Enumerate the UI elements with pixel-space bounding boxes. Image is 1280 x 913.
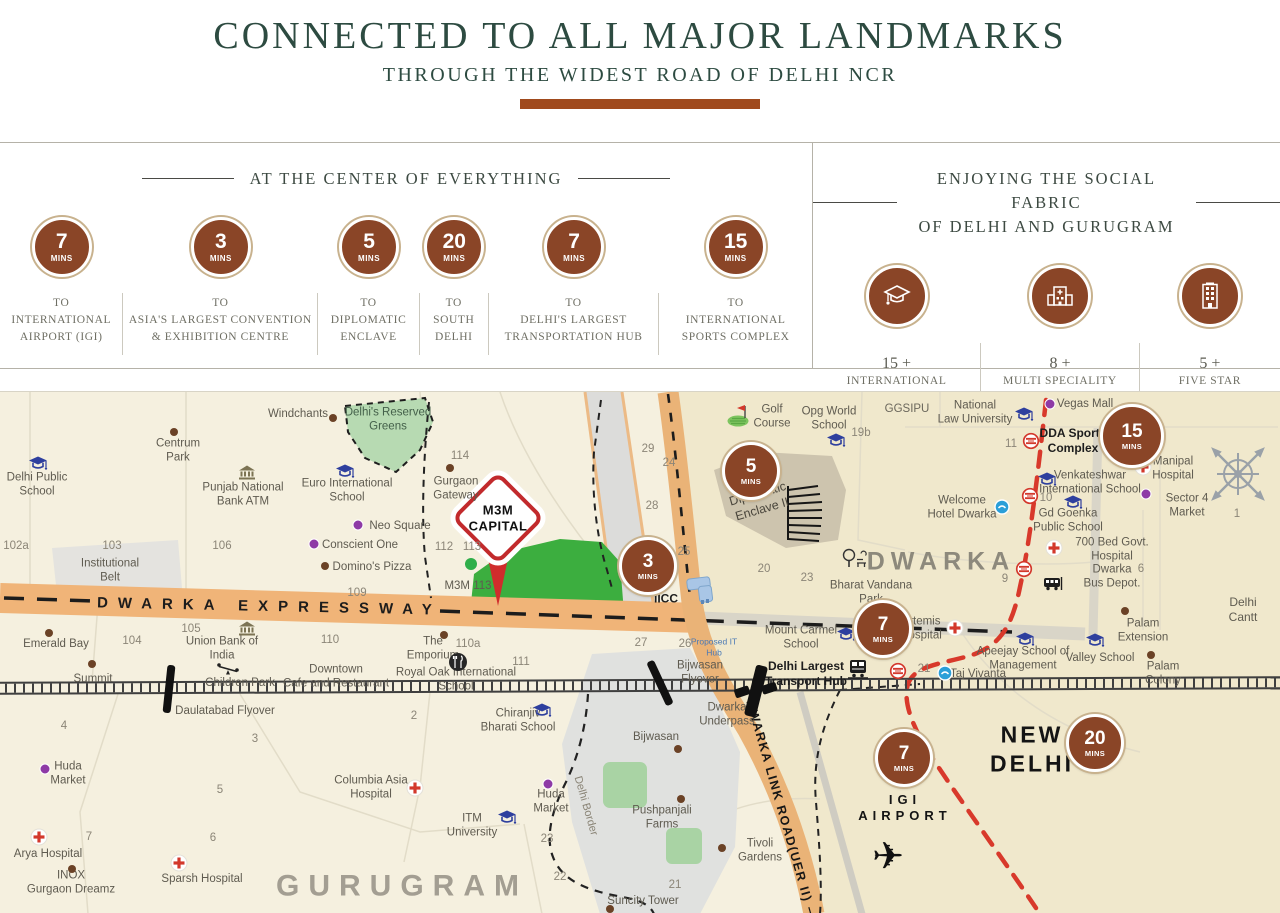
school-icon	[836, 627, 856, 644]
map-label: Summit	[74, 672, 113, 686]
dot-purple-icon	[39, 763, 51, 775]
map-label: Arya Hospital	[14, 847, 82, 861]
map-sector-number: 102a	[3, 539, 29, 553]
social-icons-row	[813, 265, 1280, 327]
minutes-badge: 15MINS	[706, 217, 766, 277]
hospital-icon	[946, 619, 964, 637]
minutes-badge: 20MINS	[424, 217, 484, 277]
hospital-icon	[170, 854, 188, 872]
hospital-icon	[30, 828, 48, 846]
map-sector-number: 21	[669, 878, 682, 892]
region-gurugram: GURUGRAM	[276, 867, 528, 905]
minutes-caption: TO INTERNATIONAL AIRPORT (IGI)	[11, 295, 111, 347]
map-sector-number: 7	[86, 830, 92, 844]
map-label: Delhi's Reserved Greens	[345, 406, 432, 435]
minutes-badge: 7MINS	[544, 217, 604, 277]
school-icon	[335, 464, 355, 481]
map-label: Palam Extension	[1118, 617, 1169, 646]
dot-brown-icon	[606, 905, 615, 913]
heading-line-left	[142, 178, 234, 179]
dot-purple-icon	[1140, 488, 1152, 500]
map-minutes-badge: 20MINS	[1066, 714, 1124, 772]
map-label: Gurgaon Gateway	[433, 475, 478, 504]
map-label: Mount Carmel School	[765, 624, 837, 653]
dot-brown-icon	[718, 844, 727, 853]
dot-brown-icon	[45, 629, 54, 638]
golf-icon	[727, 404, 755, 428]
minutes-caption-cell: TO INTERNATIONAL AIRPORT (IGI)	[0, 293, 123, 355]
minutes-caption: TO DELHI'S LARGEST TRANSPORTATION HUB	[505, 295, 643, 347]
dot-purple-icon	[1044, 398, 1056, 410]
map-label: Conscient One	[322, 538, 398, 552]
school-icon	[1063, 495, 1083, 512]
header: CONNECTED TO ALL MAJOR LANDMARKS THROUGH…	[0, 0, 1280, 109]
dot-purple-icon	[352, 519, 364, 531]
map-label: Bijwasan Flyover	[677, 659, 723, 688]
metro-icon	[1016, 561, 1033, 578]
map-label: Tivoli Gardens	[738, 837, 782, 866]
dot-green-icon	[465, 558, 478, 571]
map-sector-number: 3	[252, 732, 258, 746]
map-sector-number: 104	[122, 634, 141, 648]
map-label: National Law University	[938, 399, 1013, 428]
map-sector-number: 6	[1138, 562, 1144, 576]
map-label: Dwarka Bus Depot.	[1084, 563, 1141, 592]
compass-icon	[1210, 446, 1266, 502]
hospital-icon	[1029, 265, 1091, 327]
map-label: Centrum Park	[156, 437, 200, 466]
minutes-badge: 3MINS	[191, 217, 251, 277]
map-label: GGSIPU	[885, 402, 930, 416]
minutes-caption-cell: TO SOUTH DELHI	[420, 293, 489, 355]
dot-brown-icon	[88, 660, 97, 669]
metro-icon	[1023, 433, 1040, 450]
social-item	[981, 265, 1140, 327]
school-icon	[826, 433, 846, 450]
minutes-caption: TO ASIA'S LARGEST CONVENTION & EXHIBITIO…	[129, 295, 312, 347]
metro-icon	[890, 663, 907, 680]
map-label: Delhi Public School	[7, 471, 68, 500]
minutes-item: 20MINS	[420, 217, 489, 277]
panel-center-of-everything: AT THE CENTER OF EVERYTHING 7MINS3MINS5M…	[0, 143, 813, 368]
map-label: Sector 4 Market	[1166, 492, 1209, 521]
heading-line-right	[1196, 202, 1280, 203]
map-label: M3M 113	[444, 579, 491, 593]
bus-icon	[1043, 577, 1063, 591]
map-label: Pushpanjali Farms	[632, 804, 691, 833]
underpass-icon	[732, 664, 780, 718]
map-sector-number: 23	[541, 832, 554, 846]
region-dwarka: DWARKA	[867, 546, 1016, 577]
map-sector-number: 22	[554, 870, 567, 884]
location-map: DWARKA EXPRESSWAY DWARKA LINK ROAD(UER I…	[0, 391, 1280, 913]
map-label: Bijwasan	[633, 730, 679, 744]
map-label: Daulatabad Flyover	[175, 704, 275, 718]
region-new-delhi: NEW DELHI	[990, 720, 1074, 778]
dot-brown-icon	[677, 795, 686, 804]
map-sector-number: 9	[1002, 572, 1008, 586]
social-count: 8 +	[1049, 355, 1070, 373]
map-label: DDA Sports Complex	[1040, 426, 1107, 456]
map-label: Palam Colony	[1145, 660, 1181, 689]
map-sector-number: 28	[646, 499, 659, 513]
metro-icon	[1022, 488, 1039, 505]
school-icon	[1037, 472, 1057, 489]
title-underline-bar	[520, 99, 760, 109]
minutes-item: 7MINS	[0, 217, 123, 277]
minutes-captions-row: TO INTERNATIONAL AIRPORT (IGI)TO ASIA'S …	[0, 293, 812, 355]
school-icon	[866, 265, 928, 327]
map-minutes-badge: 3MINS	[619, 537, 677, 595]
dot-brown-icon	[446, 464, 455, 473]
seesaw-icon	[217, 663, 239, 676]
map-minutes-badge: 7MINS	[875, 729, 933, 787]
map-label: ITM University	[447, 812, 497, 841]
dot-brown-icon	[68, 865, 77, 874]
dot-brown-icon	[440, 631, 449, 640]
map-sector-number: 21	[918, 662, 931, 676]
hospital-icon	[1045, 539, 1063, 557]
dot-brown-icon	[329, 414, 338, 423]
minutes-caption: TO INTERNATIONAL SPORTS COMPLEX	[682, 295, 790, 347]
bank-icon	[239, 622, 255, 637]
map-label: Columbia Asia Hospital	[334, 774, 408, 803]
plane-icon: ✈	[872, 857, 904, 865]
map-label: Manipal Hospital	[1152, 455, 1194, 484]
map-label: Institutional Belt	[81, 557, 139, 586]
map-sector-number: 25	[678, 545, 691, 559]
dot-brown-icon	[1121, 607, 1130, 616]
blue-icon	[994, 499, 1010, 515]
map-sector-number: 113	[463, 540, 481, 554]
map-label: Opg World School	[802, 405, 857, 434]
map-sector-number: 4	[61, 719, 67, 733]
map-sector-number: 19b	[851, 426, 870, 440]
map-label: Golf Course	[753, 403, 790, 432]
dot-purple-icon	[542, 778, 554, 790]
igi-airport-label: IGI AIRPORT	[858, 792, 952, 825]
restaurant-icon	[448, 652, 468, 672]
map-sector-number: 114	[451, 449, 469, 463]
hospital-icon	[406, 779, 424, 797]
page: CONNECTED TO ALL MAJOR LANDMARKS THROUGH…	[0, 0, 1280, 913]
map-label: Welcome Hotel Dwarka	[927, 494, 996, 523]
heading-line-left	[813, 202, 897, 203]
school-icon	[1085, 633, 1105, 650]
page-subtitle: THROUGH THE WIDEST ROAD OF DELHI NCR	[0, 64, 1280, 87]
dot-brown-icon	[674, 745, 683, 754]
map-label: Downtown Cafe and Restaurant	[283, 663, 389, 692]
map-label: Sparsh Hospital	[161, 872, 242, 886]
social-item	[813, 265, 981, 327]
minutes-caption: TO DIPLOMATIC ENCLAVE	[331, 295, 407, 347]
map-sector-number: 1	[1234, 507, 1240, 521]
minutes-caption-cell: TO ASIA'S LARGEST CONVENTION & EXHIBITIO…	[123, 293, 318, 355]
map-label: Delhi Cantt	[1225, 595, 1262, 625]
map-minutes-badge: 7MINS	[854, 600, 912, 658]
minutes-caption: TO SOUTH DELHI	[433, 295, 474, 347]
map-label: Huda Market	[533, 788, 568, 817]
map-label: IICC	[654, 592, 678, 607]
map-sector-number: 24	[663, 456, 676, 470]
minutes-item: 15MINS	[659, 217, 812, 277]
map-sector-number: 106	[212, 539, 231, 553]
page-title: CONNECTED TO ALL MAJOR LANDMARKS	[0, 14, 1280, 58]
info-strip: AT THE CENTER OF EVERYTHING 7MINS3MINS5M…	[0, 142, 1280, 369]
panel-social-fabric: ENJOYING THE SOCIAL FABRICOF DELHI AND G…	[813, 143, 1280, 368]
social-count: 15 +	[882, 355, 911, 373]
map-sector-number: 6	[210, 831, 216, 845]
map-label: Windchants	[268, 407, 328, 421]
blue-icon	[937, 665, 953, 681]
map-label: 700 Bed Govt. Hospital	[1075, 536, 1149, 565]
school-icon	[497, 810, 517, 827]
map-label: Vegas Mall	[1057, 397, 1113, 411]
map-sector-number: 109	[347, 586, 366, 600]
train-icon	[847, 659, 869, 679]
map-sector-number: 110a	[456, 637, 481, 651]
map-sector-number: 23	[801, 571, 814, 585]
map-label: Huda Market	[50, 760, 85, 789]
panel-left-heading: AT THE CENTER OF EVERYTHING	[250, 167, 563, 191]
school-icon	[28, 456, 48, 473]
map-label: Proposed IT Hub	[691, 636, 737, 657]
minutes-badge: 5MINS	[339, 217, 399, 277]
map-sector-number: 26	[679, 637, 692, 651]
map-sector-number: 110	[321, 633, 339, 647]
dot-brown-icon	[170, 428, 179, 437]
minutes-item: 7MINS	[489, 217, 660, 277]
minutes-item: 3MINS	[123, 217, 318, 277]
map-label: Taj Vivanta	[950, 667, 1006, 681]
map-minutes-badge: 15MINS	[1100, 404, 1164, 468]
map-sector-number: 29	[642, 442, 655, 456]
school-icon	[532, 703, 552, 720]
minutes-caption-cell: TO DIPLOMATIC ENCLAVE	[318, 293, 420, 355]
map-sector-number: 5	[217, 783, 223, 797]
map-label: Punjab National Bank ATM	[202, 481, 283, 510]
map-label: Valley School	[1066, 651, 1135, 665]
panel-right-heading: ENJOYING THE SOCIAL FABRICOF DELHI AND G…	[913, 167, 1181, 239]
social-count: 5 +	[1199, 355, 1220, 373]
map-sector-number: 10	[1040, 491, 1053, 505]
map-sector-number: 20	[758, 562, 771, 576]
map-sector-number: 112	[435, 540, 453, 554]
map-label: Domino's Pizza	[333, 560, 412, 574]
map-sector-number: 2	[411, 709, 417, 723]
social-item	[1140, 265, 1280, 327]
heading-line-right	[578, 178, 670, 179]
tree-icon	[841, 548, 869, 570]
map-sector-number: 111	[512, 655, 529, 669]
panel-right-heading-row: ENJOYING THE SOCIAL FABRICOF DELHI AND G…	[813, 167, 1280, 239]
school-icon	[1014, 407, 1034, 424]
dot-brown-icon	[1147, 651, 1156, 660]
panel-left-heading-row: AT THE CENTER OF EVERYTHING	[0, 167, 812, 191]
map-label: Euro International School	[302, 477, 393, 506]
bank-icon	[239, 466, 255, 481]
map-label: Children Park	[205, 676, 275, 690]
map-minutes-badge: 5MINS	[722, 442, 780, 500]
map-label: Emerald Bay	[23, 637, 89, 651]
minutes-caption-cell: TO INTERNATIONAL SPORTS COMPLEX	[659, 293, 812, 355]
map-label: Neo Square	[369, 519, 430, 533]
m3m-capital-pin-label: M3M CAPITAL	[469, 502, 528, 533]
minutes-item: 5MINS	[318, 217, 420, 277]
map-sector-number: 103	[102, 539, 121, 553]
dot-brown-icon	[321, 562, 330, 571]
minutes-badge: 7MINS	[32, 217, 92, 277]
dot-purple-icon	[308, 538, 320, 550]
minutes-caption-cell: TO DELHI'S LARGEST TRANSPORTATION HUB	[489, 293, 660, 355]
map-label: Suncity Tower	[607, 894, 678, 908]
map-sector-number: 11	[1005, 437, 1017, 451]
minutes-circles-row: 7MINS3MINS5MINS20MINS7MINS15MINS	[0, 217, 812, 277]
hotel-icon	[1179, 265, 1241, 327]
school-icon	[1015, 632, 1035, 649]
map-label: Union Bank of India	[186, 635, 258, 664]
iicc-icon	[685, 575, 721, 607]
map-sector-number: 27	[635, 636, 648, 650]
